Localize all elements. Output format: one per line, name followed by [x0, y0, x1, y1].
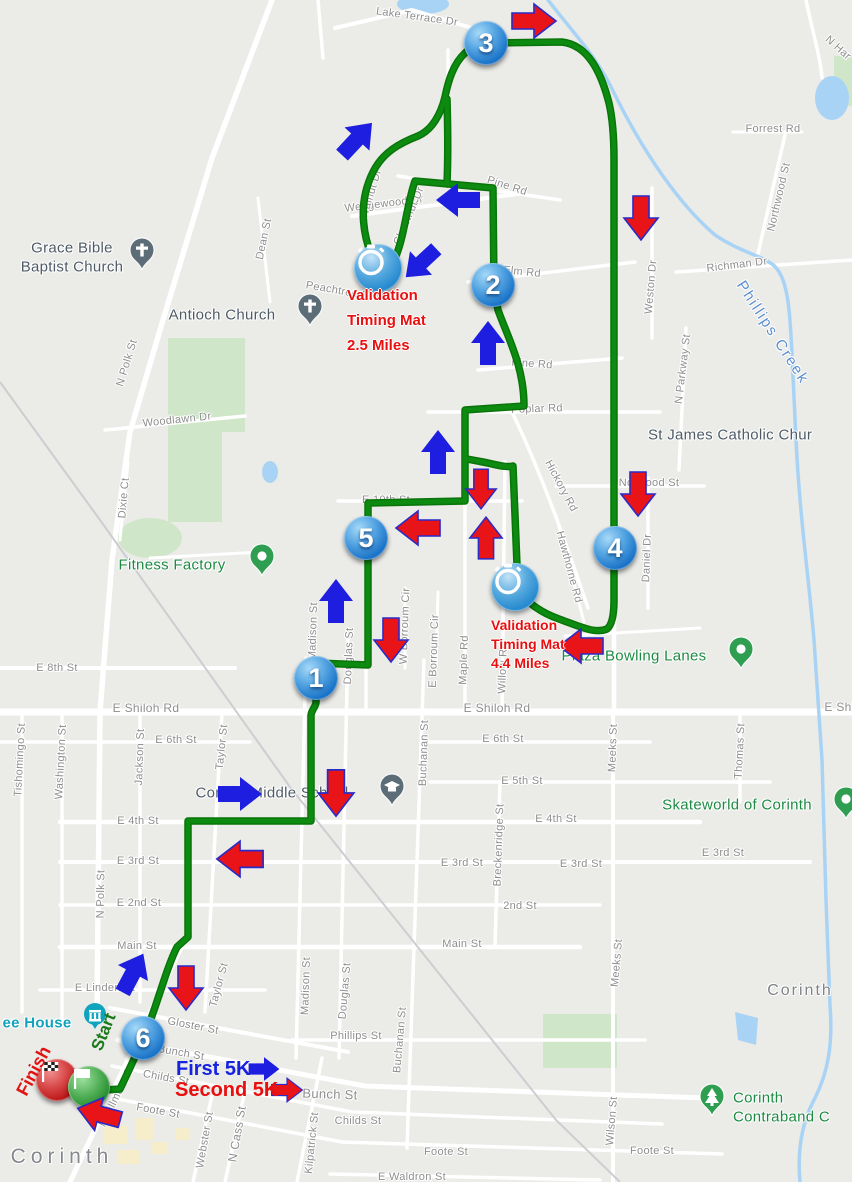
blue-direction-arrow [319, 579, 353, 623]
blue-direction-arrow [471, 321, 505, 365]
timing-mat-4-4-line2: Timing Mat [491, 635, 565, 654]
timing-mat-2-5-line1: Validation [347, 283, 426, 308]
timing-mat-4-4-label: Validation Timing Mat 4.4 Miles [491, 616, 565, 673]
timing-mat-2-5-line2: Timing Mat [347, 308, 426, 333]
direction-arrows-layer [0, 0, 852, 1182]
timing-mat-4-4-line1: Validation [491, 616, 565, 635]
blue-direction-arrow [249, 1057, 280, 1081]
red-direction-arrow [559, 629, 603, 663]
blue-direction-arrow [108, 946, 159, 1001]
timing-mat-2-5-line3: 2.5 Miles [347, 333, 426, 358]
red-direction-arrow [624, 196, 658, 240]
red-direction-arrow [512, 4, 556, 38]
red-direction-arrow [217, 841, 263, 877]
red-direction-arrow [470, 517, 502, 559]
blue-direction-arrow [421, 430, 455, 474]
first-5k-legend-label: First 5K [176, 1058, 250, 1081]
red-direction-arrow [374, 618, 408, 662]
red-direction-arrow [621, 472, 655, 516]
blue-direction-arrow [395, 237, 448, 289]
red-direction-arrow [396, 511, 440, 545]
race-course-map[interactable]: Lake Terrace DrWedgewood DrPine RdElm Rd… [0, 0, 852, 1182]
timing-mat-4-4-line3: 4.4 Miles [491, 654, 565, 673]
blue-direction-arrow [436, 183, 480, 217]
blue-direction-arrow [330, 111, 385, 166]
red-direction-arrow [466, 469, 497, 509]
blue-direction-arrow [218, 777, 262, 811]
red-direction-arrow [73, 1092, 124, 1136]
red-direction-arrow [169, 966, 203, 1010]
second-5k-legend-label: Second 5K [175, 1079, 278, 1102]
red-direction-arrow [318, 770, 354, 816]
timing-mat-2-5-label: Validation Timing Mat 2.5 Miles [347, 283, 426, 358]
